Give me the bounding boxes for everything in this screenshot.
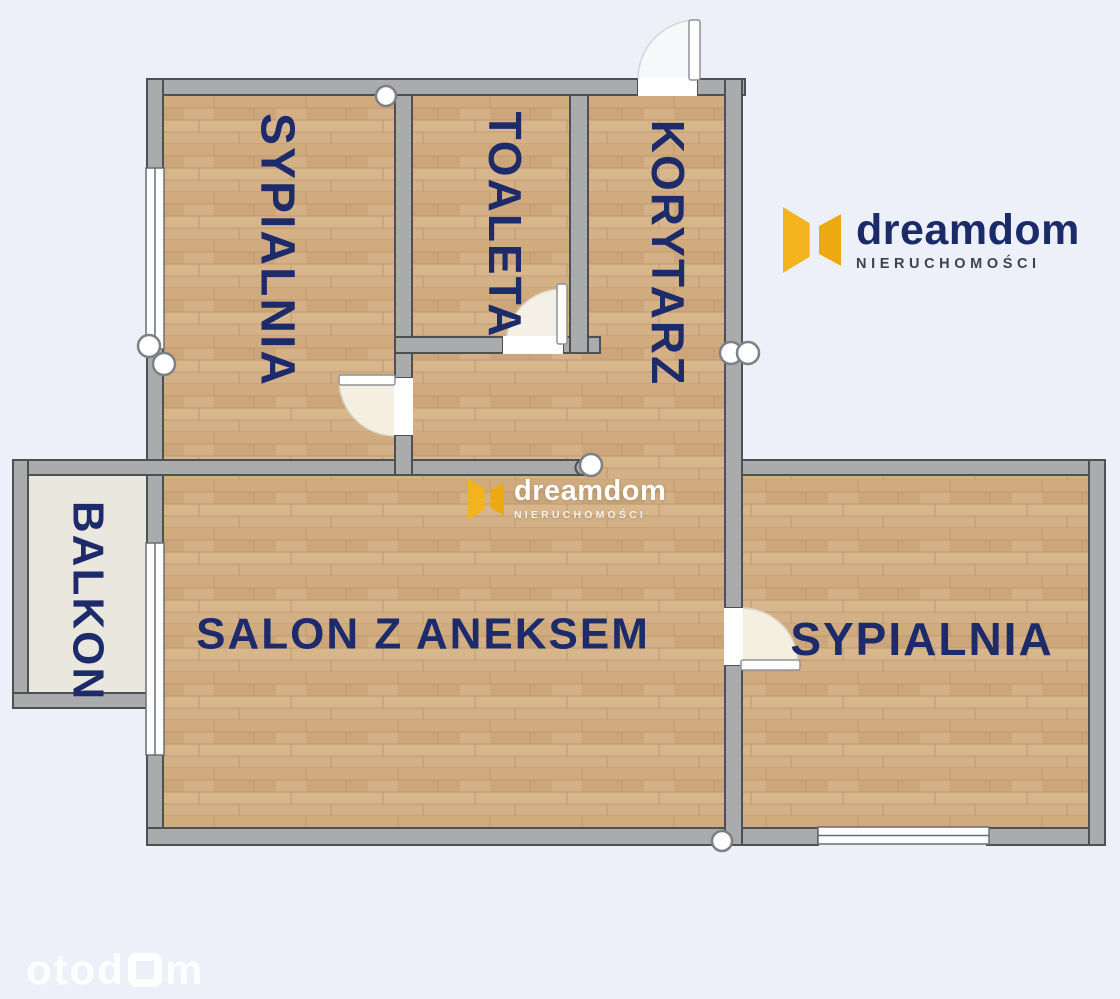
watermark-tagline: NIERUCHOMOŚCI [514,509,666,521]
dreamdom-watermark-icon [468,477,504,521]
wall-bottom-right [987,828,1105,845]
entrance-door-swing [638,20,697,79]
otodom-watermark: otod m [26,946,204,994]
wall-toilet-east [570,95,588,353]
floor-plan-page: SYPIALNIA TOALETA KORYTARZ BALKON SALON … [0,0,1120,999]
center-watermark-text: dreamdom NIERUCHOMOŚCI [514,477,666,521]
wall-shared-east-b [725,665,742,845]
agency-logo: dreamdom NIERUCHOMOŚCI [783,205,1080,275]
wall-toilet-south-a [395,337,503,353]
logo-right-wing-icon [490,477,504,521]
room-label-bedroom-right: SYPIALNIA [790,613,1053,665]
floor-hallway-arm [402,345,592,470]
wall-bedroom-right-east [1089,460,1105,845]
junction-marker [153,353,175,375]
center-watermark: dreamdom NIERUCHOMOŚCI [468,477,666,521]
entrance-opening [638,78,697,96]
room-label-bedroom-top: SYPIALNIA [251,113,304,387]
room-label-toilet: TOALETA [479,112,531,339]
logo-right-wing-icon [819,205,841,275]
dreamdom-logo-icon [783,205,841,275]
wall-west-b [147,347,163,545]
wall-west-a [147,79,163,170]
wall-divider [13,460,583,475]
logo-left-wing-icon [783,205,810,275]
toilet-opening [503,336,563,354]
logo-left-wing-icon [468,477,485,521]
room-label-balcony: BALKON [64,501,113,701]
watermark-brand-name: dreamdom [514,477,666,506]
square-o-icon [128,953,162,987]
room-label-living: SALON Z ANEKSEM [196,610,650,659]
bedroom-top-opening [394,378,413,435]
bedroom-right-opening [724,608,743,665]
wall-bedroom-top-east-b [395,435,412,475]
junction-marker [376,86,396,106]
toilet-door-leaf [557,284,567,344]
wall-bedroom-top-east-a [395,95,412,378]
junction-marker [712,831,732,851]
agency-tagline: NIERUCHOMOŚCI [856,256,1080,272]
wall-balcony-west [13,460,28,708]
agency-logo-text: dreamdom NIERUCHOMOŚCI [856,209,1080,272]
entrance-door-leaf [689,20,700,80]
bedroom-top-door-leaf [339,375,395,385]
junction-marker [138,335,160,357]
room-label-hallway: KORYTARZ [642,120,694,386]
junction-marker [737,342,759,364]
junction-marker [580,454,602,476]
wall-bedroom-right-north [742,460,1105,475]
otodom-watermark-prefix: otod [26,946,125,994]
agency-brand-name: dreamdom [856,209,1080,252]
otodom-watermark-suffix: m [165,946,204,994]
